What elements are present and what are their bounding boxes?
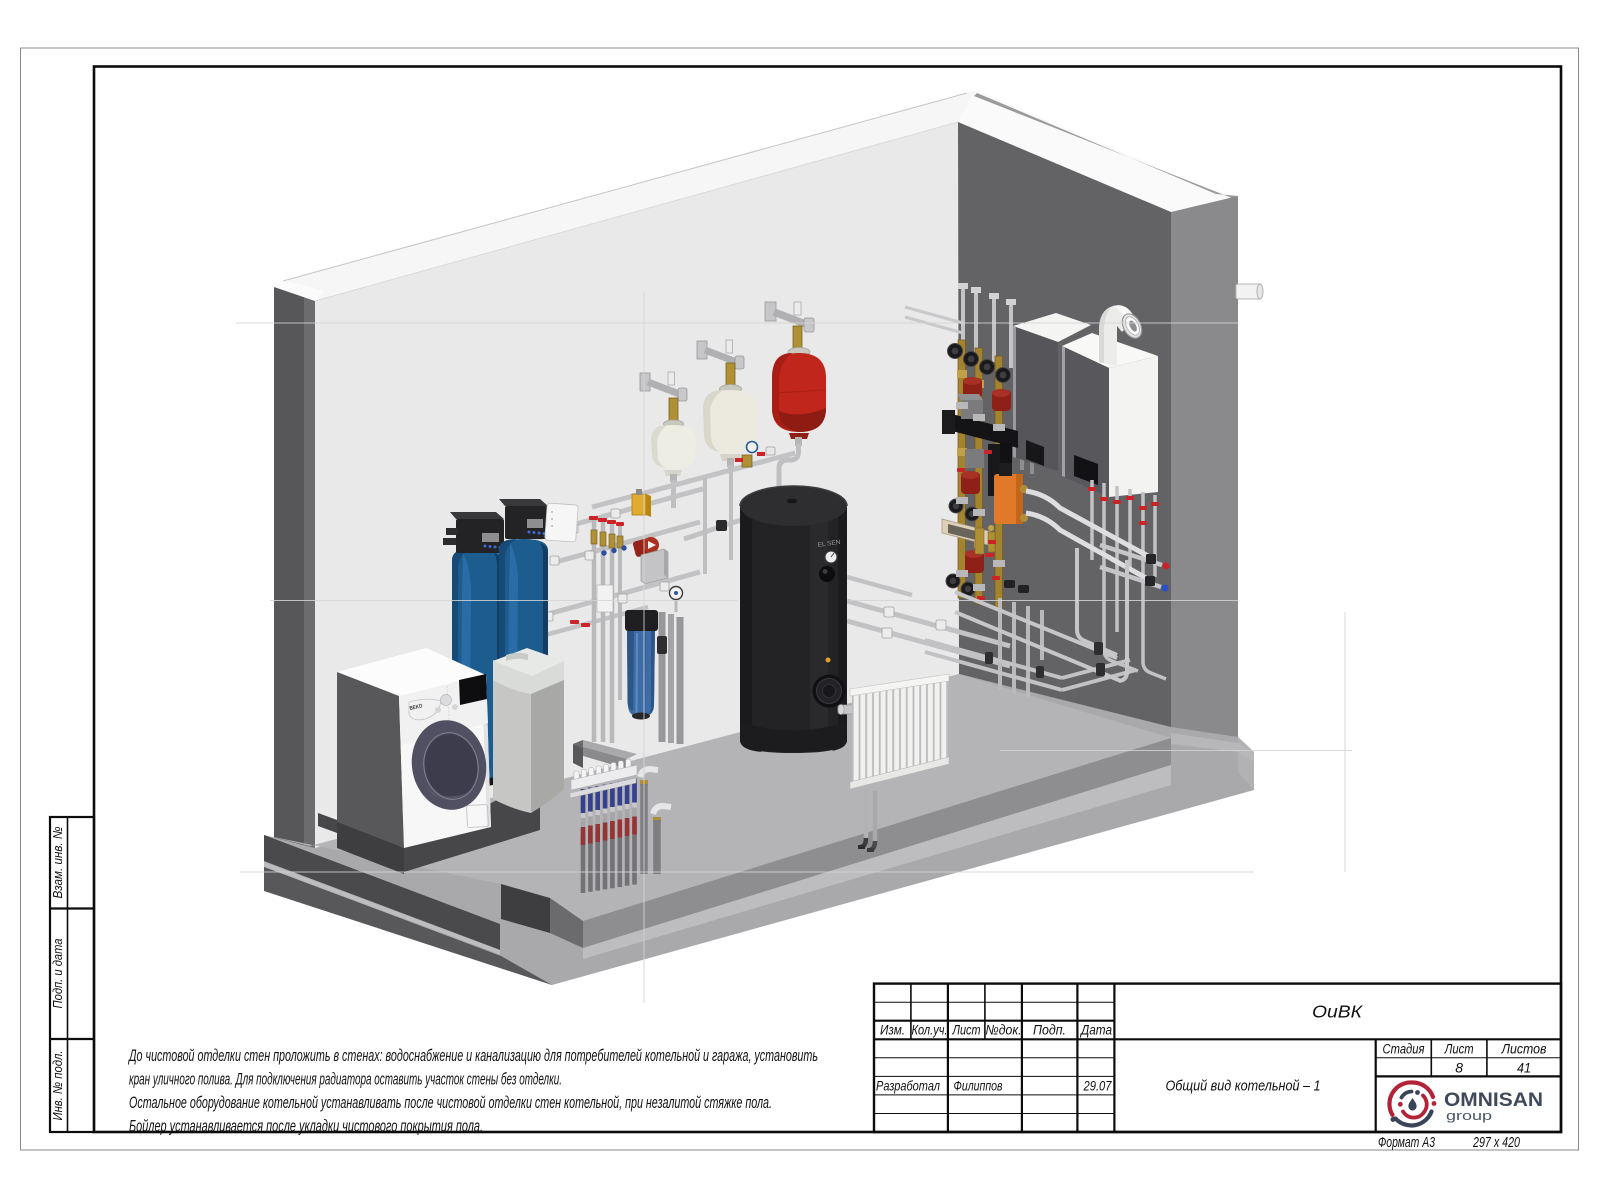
- svg-text:Остальное оборудование котельн: Остальное оборудование котельной устанав…: [129, 1094, 772, 1112]
- svg-text:Листов: Листов: [1501, 1041, 1547, 1056]
- svg-text:Подп.: Подп.: [1033, 1022, 1066, 1038]
- svg-text:Инв. № подл.: Инв. № подл.: [50, 1051, 65, 1121]
- svg-text:Бойлер устанавливается после у: Бойлер устанавливается после укладки чис…: [129, 1118, 483, 1136]
- svg-text:29.07: 29.07: [1083, 1078, 1113, 1094]
- svg-text:Дата: Дата: [1079, 1022, 1112, 1038]
- svg-text:Стадия: Стадия: [1383, 1041, 1425, 1056]
- svg-text:Взам. инв. №: Взам. инв. №: [50, 827, 65, 899]
- svg-text:Общий вид котельной – 1: Общий вид котельной – 1: [1166, 1079, 1321, 1095]
- svg-text:8: 8: [1455, 1060, 1463, 1076]
- svg-text:Разработал: Разработал: [876, 1078, 940, 1094]
- svg-text:Подп. и дата: Подп. и дата: [50, 939, 65, 1009]
- svg-text:Лист: Лист: [1444, 1041, 1474, 1056]
- svg-text:Изм.: Изм.: [880, 1022, 905, 1038]
- svg-text:№док.: №док.: [986, 1022, 1022, 1038]
- svg-text:297 x 420: 297 x 420: [1472, 1135, 1520, 1151]
- svg-text:До чистовой отделки стен проло: До чистовой отделки стен проложить в сте…: [128, 1047, 818, 1065]
- svg-text:OMNISAN: OMNISAN: [1444, 1090, 1543, 1111]
- svg-text:group: group: [1446, 1109, 1492, 1123]
- svg-text:Формат А3: Формат А3: [1378, 1135, 1435, 1151]
- svg-text:кран уличного полива. Для подк: кран уличного полива. Для подключения ра…: [129, 1071, 562, 1089]
- svg-text:Филиппов: Филиппов: [954, 1078, 1003, 1094]
- svg-text:Лист: Лист: [952, 1022, 981, 1038]
- svg-text:Кол.уч.: Кол.уч.: [912, 1022, 948, 1038]
- svg-text:ОиВК: ОиВК: [1312, 1002, 1364, 1022]
- svg-text:41: 41: [1517, 1060, 1531, 1076]
